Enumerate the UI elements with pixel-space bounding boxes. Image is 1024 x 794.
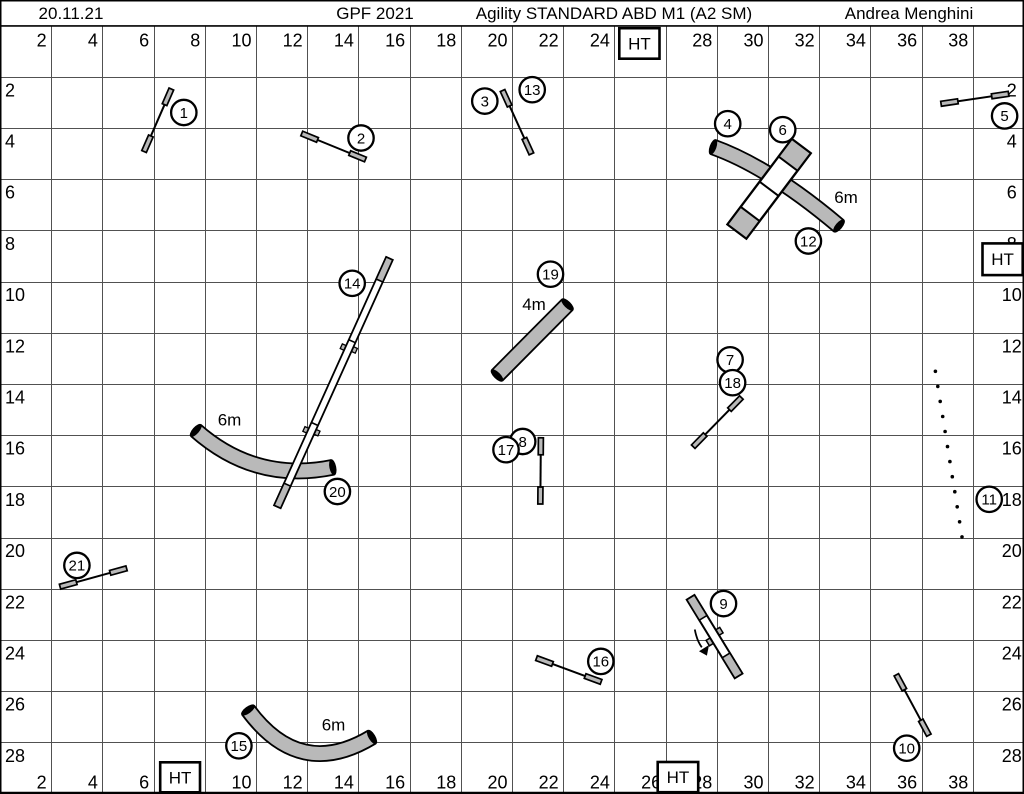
svg-text:15: 15 bbox=[231, 738, 248, 755]
svg-text:14: 14 bbox=[334, 773, 354, 793]
svg-text:36: 36 bbox=[897, 31, 917, 51]
svg-text:12: 12 bbox=[1002, 336, 1022, 356]
svg-text:13: 13 bbox=[524, 82, 541, 99]
svg-text:16: 16 bbox=[1002, 439, 1022, 459]
svg-text:16: 16 bbox=[385, 773, 405, 793]
svg-text:12: 12 bbox=[5, 336, 25, 356]
svg-text:12: 12 bbox=[800, 233, 817, 250]
svg-text:20: 20 bbox=[487, 773, 507, 793]
svg-text:4m: 4m bbox=[522, 295, 546, 314]
svg-text:16: 16 bbox=[5, 439, 25, 459]
svg-text:6m: 6m bbox=[834, 188, 858, 207]
svg-text:28: 28 bbox=[692, 31, 712, 51]
svg-text:GPF 2021: GPF 2021 bbox=[336, 4, 414, 23]
svg-text:6: 6 bbox=[139, 31, 149, 51]
svg-text:36: 36 bbox=[897, 773, 917, 793]
svg-text:HT: HT bbox=[628, 35, 651, 54]
svg-text:20: 20 bbox=[487, 31, 507, 51]
svg-text:6: 6 bbox=[139, 773, 149, 793]
svg-text:38: 38 bbox=[948, 31, 968, 51]
svg-text:8: 8 bbox=[5, 234, 15, 254]
svg-text:34: 34 bbox=[846, 773, 866, 793]
svg-text:34: 34 bbox=[846, 31, 866, 51]
svg-text:4: 4 bbox=[1007, 132, 1017, 152]
svg-text:32: 32 bbox=[795, 773, 815, 793]
svg-text:26: 26 bbox=[1002, 695, 1022, 715]
svg-text:12: 12 bbox=[283, 31, 303, 51]
svg-text:20.11.21: 20.11.21 bbox=[39, 4, 104, 23]
svg-text:6m: 6m bbox=[218, 411, 242, 430]
svg-text:6: 6 bbox=[779, 122, 787, 139]
svg-text:14: 14 bbox=[1002, 388, 1022, 408]
svg-text:17: 17 bbox=[498, 442, 515, 459]
svg-text:10: 10 bbox=[898, 741, 915, 758]
svg-text:32: 32 bbox=[795, 31, 815, 51]
svg-text:7: 7 bbox=[726, 352, 734, 369]
svg-text:22: 22 bbox=[1002, 592, 1022, 612]
svg-text:Agility STANDARD ABD M1 (A2 SM: Agility STANDARD ABD M1 (A2 SM) bbox=[476, 4, 752, 23]
svg-text:6: 6 bbox=[5, 183, 15, 203]
svg-text:28: 28 bbox=[5, 746, 25, 766]
svg-text:20: 20 bbox=[5, 541, 25, 561]
svg-text:4: 4 bbox=[724, 116, 732, 133]
svg-text:8: 8 bbox=[190, 31, 200, 51]
svg-text:3: 3 bbox=[481, 93, 489, 110]
svg-text:18: 18 bbox=[436, 773, 456, 793]
svg-text:14: 14 bbox=[5, 388, 25, 408]
svg-text:2: 2 bbox=[37, 773, 47, 793]
svg-text:8: 8 bbox=[519, 434, 527, 451]
svg-text:24: 24 bbox=[590, 31, 610, 51]
svg-text:10: 10 bbox=[1002, 285, 1022, 305]
svg-text:22: 22 bbox=[539, 773, 559, 793]
svg-text:14: 14 bbox=[334, 31, 354, 51]
svg-text:26: 26 bbox=[5, 695, 25, 715]
svg-text:2: 2 bbox=[1007, 80, 1017, 100]
svg-text:22: 22 bbox=[539, 31, 559, 51]
svg-text:19: 19 bbox=[542, 267, 559, 284]
svg-text:1: 1 bbox=[180, 105, 188, 122]
svg-text:18: 18 bbox=[724, 375, 741, 392]
svg-text:20: 20 bbox=[1002, 541, 1022, 561]
svg-text:12: 12 bbox=[283, 773, 303, 793]
svg-text:21: 21 bbox=[69, 558, 86, 575]
svg-text:10: 10 bbox=[231, 773, 251, 793]
svg-text:10: 10 bbox=[231, 31, 251, 51]
svg-text:2: 2 bbox=[5, 80, 15, 100]
svg-text:6m: 6m bbox=[322, 716, 346, 735]
svg-text:18: 18 bbox=[436, 31, 456, 51]
svg-text:24: 24 bbox=[1002, 644, 1022, 664]
svg-text:5: 5 bbox=[1000, 108, 1008, 125]
svg-text:Andrea Menghini: Andrea Menghini bbox=[845, 4, 974, 23]
svg-text:HT: HT bbox=[169, 768, 192, 787]
svg-text:2: 2 bbox=[37, 31, 47, 51]
svg-text:18: 18 bbox=[1002, 490, 1022, 510]
svg-text:HT: HT bbox=[991, 250, 1014, 269]
svg-text:10: 10 bbox=[5, 285, 25, 305]
svg-text:16: 16 bbox=[385, 31, 405, 51]
svg-text:22: 22 bbox=[5, 592, 25, 612]
svg-text:38: 38 bbox=[948, 773, 968, 793]
svg-text:16: 16 bbox=[592, 654, 609, 671]
svg-text:18: 18 bbox=[5, 490, 25, 510]
svg-text:24: 24 bbox=[590, 773, 610, 793]
svg-text:4: 4 bbox=[5, 132, 15, 152]
svg-text:14: 14 bbox=[344, 276, 361, 293]
svg-text:HT: HT bbox=[667, 768, 690, 787]
svg-text:20: 20 bbox=[329, 484, 346, 501]
svg-text:4: 4 bbox=[88, 31, 98, 51]
svg-text:2: 2 bbox=[357, 130, 365, 147]
svg-text:4: 4 bbox=[88, 773, 98, 793]
svg-text:9: 9 bbox=[719, 596, 727, 613]
svg-text:30: 30 bbox=[743, 31, 763, 51]
svg-text:30: 30 bbox=[743, 773, 763, 793]
svg-text:24: 24 bbox=[5, 644, 25, 664]
svg-text:28: 28 bbox=[1002, 746, 1022, 766]
svg-text:11: 11 bbox=[981, 492, 997, 509]
svg-text:6: 6 bbox=[1007, 183, 1017, 203]
